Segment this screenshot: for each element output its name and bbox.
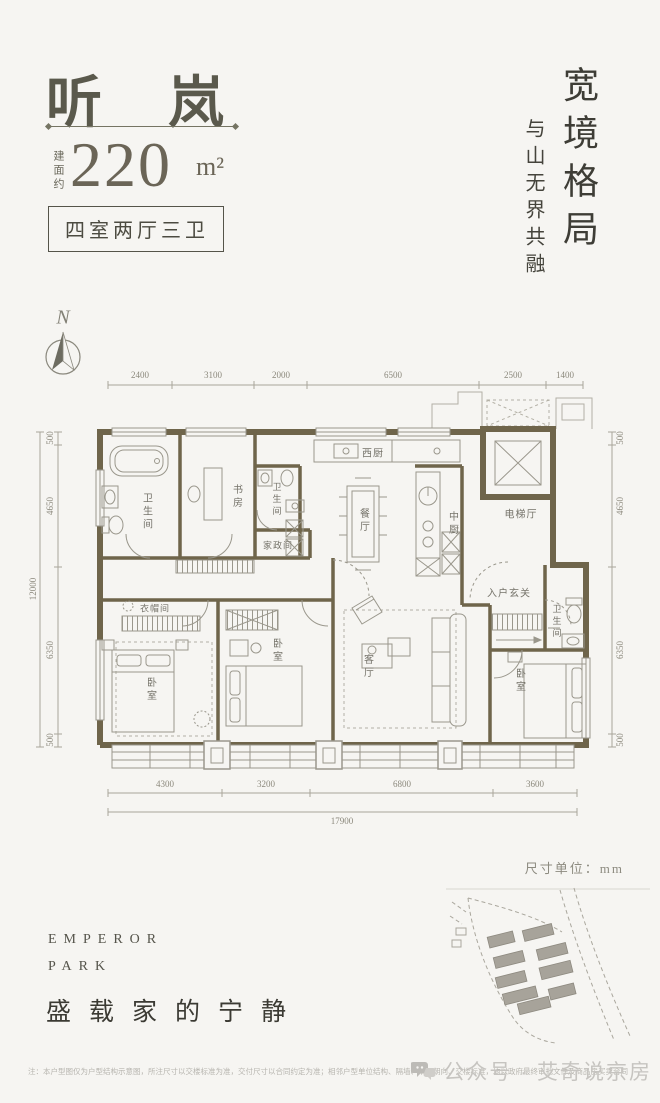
dim-bottom-4: 3600 xyxy=(526,779,544,789)
brand-line1: EMPEROR xyxy=(48,926,163,953)
chair xyxy=(188,486,200,502)
site-map xyxy=(446,888,650,1043)
dim-left-2: 4650 xyxy=(45,497,55,515)
shoe-cabinet xyxy=(492,614,542,630)
dim-right-4: 500 xyxy=(615,733,625,747)
dim-left-total: 12000 xyxy=(28,578,38,601)
dim-top-4: 6500 xyxy=(384,370,402,380)
room-bedroom-master: 卧室 xyxy=(143,677,158,703)
dim-bottom-3: 6800 xyxy=(393,779,411,789)
dim-right-1: 500 xyxy=(615,431,625,445)
chat-bubbles-icon xyxy=(411,1059,437,1083)
watermark-text: 公众号 · 艾奇说京房 xyxy=(443,1056,652,1086)
bed-mid xyxy=(226,666,302,726)
tagline-main: 宽境格局 xyxy=(552,66,604,258)
dim-left-3: 6350 xyxy=(45,641,55,659)
slogan: 盛载家的宁静 xyxy=(46,992,304,1028)
room-bedroom-right: 卧室 xyxy=(512,668,527,694)
layout-badge: 四室两厅三卫 xyxy=(48,206,224,252)
room-cloak: 衣帽间 xyxy=(140,602,170,615)
dim-top-6: 1400 xyxy=(556,370,574,380)
adjacent-structures xyxy=(432,392,592,430)
floorplan-poster: { "header": { "title": "听 岚", "area_pref… xyxy=(0,0,660,1103)
dim-left-4: 500 xyxy=(45,733,55,747)
hall-closet xyxy=(176,560,254,573)
room-living: 客厅 xyxy=(360,654,375,680)
dim-top-3: 2000 xyxy=(272,370,290,380)
dim-bottom-total: 17900 xyxy=(331,816,354,826)
sofa xyxy=(450,614,466,726)
room-bath-small: 卫生间 xyxy=(271,482,284,518)
site-buildings xyxy=(487,924,576,1015)
room-dining: 餐厅 xyxy=(356,508,371,534)
brand-line2: PARK xyxy=(48,953,163,980)
watermark: 公众号 · 艾奇说京房 xyxy=(411,1056,652,1086)
dim-top-5: 2500 xyxy=(504,370,522,380)
area-number: 220 xyxy=(70,128,172,202)
master-rug xyxy=(116,642,212,736)
unit-note: 尺寸单位：mm xyxy=(525,858,624,877)
tagline-sub: 与山无界共融 xyxy=(519,118,548,280)
room-bedroom-mid: 卧室 xyxy=(269,638,284,664)
dim-right-2: 4650 xyxy=(615,497,625,515)
west-kitchen-counter xyxy=(314,440,460,462)
room-west-kitchen: 西厨 xyxy=(362,445,384,460)
compass-icon xyxy=(46,332,80,374)
balcony-band xyxy=(112,741,574,769)
bed-right xyxy=(524,664,586,738)
room-chinese-kitchen: 中厨 xyxy=(445,511,460,537)
dim-bottom-2: 3200 xyxy=(257,779,275,789)
dim-top-2: 3100 xyxy=(204,370,222,380)
dim-right-3: 6350 xyxy=(615,641,625,659)
area-unit: m² xyxy=(196,152,224,182)
room-housekeeping: 家政间 xyxy=(263,539,293,552)
area-prefix: 建面约 xyxy=(50,150,66,192)
dim-top-1: 2400 xyxy=(131,370,149,380)
desk xyxy=(204,468,222,520)
room-foyer: 入户玄关 xyxy=(487,585,531,600)
room-elevator-hall: 电梯厅 xyxy=(505,506,538,521)
north-label: N xyxy=(56,307,69,330)
room-bath-right: 卫生间 xyxy=(551,604,564,640)
brand-logo: EMPEROR PARK xyxy=(48,926,163,981)
room-study: 书房 xyxy=(229,484,244,510)
title-divider xyxy=(48,126,236,127)
room-bath-main: 卫生间 xyxy=(139,493,154,532)
dim-left-1: 500 xyxy=(45,431,55,445)
dim-bottom-1: 4300 xyxy=(156,779,174,789)
cloak-closet xyxy=(122,616,200,631)
